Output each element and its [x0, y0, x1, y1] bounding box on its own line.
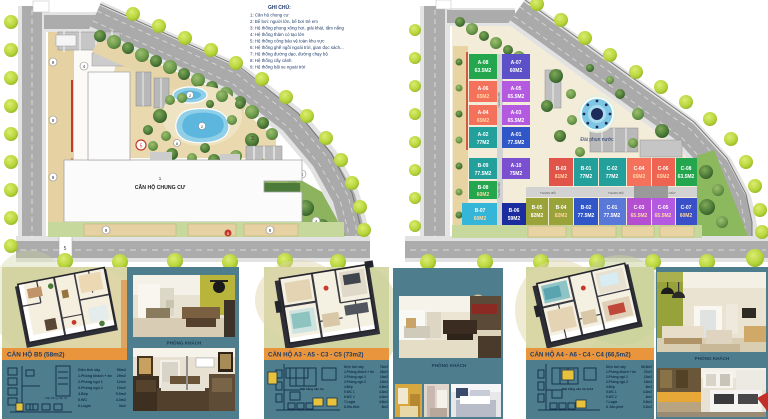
svg-text:10m2: 10m2 — [644, 380, 652, 384]
svg-text:B-06: B-06 — [509, 208, 520, 214]
svg-text:4: Hệ thống thảm cỏ tạo lớn: 4: Hệ thống thảm cỏ tạo lớn — [250, 32, 305, 37]
svg-text:C-07: C-07 — [681, 205, 692, 211]
svg-text:3m2: 3m2 — [119, 404, 126, 408]
svg-text:5.WC: 5.WC — [78, 398, 87, 402]
svg-text:1.Phòng khách + ăn: 1.Phòng khách + ăn — [606, 370, 636, 374]
svg-text:9: Hệ thống bãi xe ngoài trời: 9: Hệ thống bãi xe ngoài trời — [250, 65, 305, 70]
svg-text:CĂN HỘ A4 - A6 - C4 - C4 (66,5: CĂN HỘ A4 - A6 - C4 - C4 (66,5m2) — [530, 351, 631, 359]
svg-text:60M2: 60M2 — [477, 192, 490, 198]
svg-text:B-08: B-08 — [478, 185, 489, 191]
svg-text:C-08: C-08 — [681, 166, 692, 172]
svg-text:CĂN HỘ CHUNG CƯ: CĂN HỘ CHUNG CƯ — [135, 183, 186, 191]
svg-text:A-01: A-01 — [511, 132, 522, 138]
svg-text:PHÒNG KHÁCH: PHÒNG KHÁCH — [167, 339, 202, 346]
svg-text:B-02: B-02 — [581, 205, 592, 211]
svg-text:6: Hệ thống ghế ngồi ngoài trờ: 6: Hệ thống ghế ngồi ngoài trời, gian đọ… — [250, 45, 344, 50]
svg-text:C-05: C-05 — [658, 205, 669, 211]
svg-text:4.Bếp: 4.Bếp — [78, 392, 89, 396]
svg-text:Đài phun nước: Đài phun nước — [580, 137, 614, 143]
svg-text:4.Bếp: 4.Bếp — [606, 385, 615, 389]
svg-text:CĂN HỘ A3 - A5 - C3 - C5 (73m2: CĂN HỘ A3 - A5 - C3 - C5 (73m2) — [268, 351, 363, 359]
svg-text:GHI CHÚ:: GHI CHÚ: — [268, 4, 291, 11]
svg-text:7.Logia: 7.Logia — [606, 400, 617, 404]
svg-text:7.Logia: 7.Logia — [344, 400, 355, 404]
svg-text:C-01: C-01 — [607, 205, 618, 211]
svg-text:63.5M2: 63.5M2 — [678, 174, 695, 180]
svg-text:A-05: A-05 — [511, 86, 522, 92]
svg-text:6.Logia: 6.Logia — [78, 404, 92, 408]
svg-text:3.5m2: 3.5m2 — [643, 400, 652, 404]
svg-text:4.5m2: 4.5m2 — [379, 400, 388, 404]
svg-text:73m2: 73m2 — [380, 365, 388, 369]
svg-text:8: Hệ thống cây cảnh: 8: Hệ thống cây cảnh — [250, 58, 292, 63]
svg-text:A-02: A-02 — [478, 132, 489, 138]
svg-text:5: Hệ thống cổng bảo vệ toàn k: 5: Hệ thống cổng bảo vệ toàn khu vực — [250, 39, 325, 44]
svg-text:B-07: B-07 — [475, 208, 486, 214]
svg-text:C-03: C-03 — [634, 205, 645, 211]
svg-text:B-09: B-09 — [478, 163, 489, 169]
svg-text:82M2: 82M2 — [555, 213, 568, 219]
svg-text:14m2: 14m2 — [380, 375, 388, 379]
svg-text:66,5m2: 66,5m2 — [641, 365, 652, 369]
svg-text:3.Phòng ngủ 2: 3.Phòng ngủ 2 — [606, 380, 628, 384]
svg-text:65M2: 65M2 — [477, 94, 490, 100]
svg-text:60M2: 60M2 — [680, 213, 693, 219]
svg-text:2: Bể bơi: người lớn, bể bơi t: 2: Bể bơi: người lớn, bể bơi trẻ em — [250, 19, 318, 24]
svg-text:B-04: B-04 — [556, 205, 567, 211]
svg-text:2.Phòng ngủ 1: 2.Phòng ngủ 1 — [344, 375, 366, 379]
svg-text:1: Căn hộ chung cư: 1: Căn hộ chung cư — [250, 13, 289, 18]
svg-text:77.5M2: 77.5M2 — [475, 171, 492, 177]
svg-text:1.Phòng khách + ăn: 1.Phòng khách + ăn — [78, 374, 112, 378]
svg-text:3.Phòng ngủ 2: 3.Phòng ngủ 2 — [344, 380, 366, 384]
svg-text:THANG BỘ: THANG BỘ — [540, 190, 556, 195]
svg-text:8m2: 8m2 — [646, 385, 653, 389]
svg-text:3.: 3. — [251, 136, 255, 142]
svg-text:A-08: A-08 — [478, 60, 489, 66]
svg-text:63.5M2: 63.5M2 — [475, 68, 492, 74]
svg-text:65.5M2: 65.5M2 — [508, 118, 525, 124]
svg-text:65M2: 65M2 — [477, 118, 490, 124]
svg-text:75M2: 75M2 — [510, 171, 523, 177]
svg-text:Mặt bằng căn hộ: Mặt bằng căn hộ — [45, 395, 68, 400]
svg-text:81M2: 81M2 — [555, 174, 568, 180]
svg-text:4m2: 4m2 — [646, 395, 653, 399]
svg-text:77.5M2: 77.5M2 — [578, 213, 595, 219]
svg-text:8.Gia đình: 8.Gia đình — [344, 405, 359, 409]
svg-text:60M2: 60M2 — [474, 216, 487, 222]
svg-text:10m2: 10m2 — [117, 386, 126, 390]
svg-text:A-06: A-06 — [478, 86, 489, 92]
svg-text:6.WC 2: 6.WC 2 — [606, 395, 617, 399]
svg-text:B-01: B-01 — [581, 166, 592, 172]
svg-text:4.5m2: 4.5m2 — [379, 385, 388, 389]
svg-text:CĂN HỘ B5 (58m2): CĂN HỘ B5 (58m2) — [7, 350, 65, 359]
svg-text:5: 5 — [140, 144, 143, 150]
svg-text:1.Phòng khách + ăn: 1.Phòng khách + ăn — [344, 370, 374, 374]
svg-text:C-04: C-04 — [634, 166, 645, 172]
svg-text:6.WC 2: 6.WC 2 — [344, 395, 355, 399]
svg-text:PHÒNG KHÁCH: PHÒNG KHÁCH — [695, 354, 730, 361]
svg-text:77.5M2: 77.5M2 — [604, 213, 621, 219]
svg-text:77M2: 77M2 — [580, 174, 593, 180]
svg-text:8m2: 8m2 — [382, 405, 389, 409]
svg-text:4.Bếp: 4.Bếp — [344, 385, 353, 389]
svg-text:PHÒNG KHÁCH: PHÒNG KHÁCH — [432, 361, 467, 368]
svg-text:12m2: 12m2 — [644, 375, 652, 379]
svg-text:12m2: 12m2 — [117, 380, 126, 384]
svg-text:A-10: A-10 — [511, 163, 522, 169]
svg-text:3: Hệ thống phong xông hơi, gi: 3: Hệ thống phong xông hơi, giải khát, t… — [250, 26, 344, 31]
svg-text:2.Phòng ngủ 1: 2.Phòng ngủ 1 — [78, 380, 103, 384]
svg-text:4.3m2: 4.3m2 — [379, 390, 388, 394]
svg-text:B-03: B-03 — [556, 166, 567, 172]
svg-text:65M2: 65M2 — [633, 174, 646, 180]
svg-text:Mặt bằng căn hộ: Mặt bằng căn hộ — [300, 386, 324, 391]
svg-text:58m2: 58m2 — [117, 368, 126, 372]
svg-text:7: Hệ thống đường dạo, đường c: 7: Hệ thống đường dạo, đường chạy bộ — [250, 52, 328, 57]
svg-text:4.3m2: 4.3m2 — [116, 398, 126, 402]
svg-text:4.3m2: 4.3m2 — [379, 395, 388, 399]
svg-text:5.WC 1: 5.WC 1 — [344, 390, 355, 394]
svg-text:82M2: 82M2 — [531, 213, 544, 219]
svg-text:10m2: 10m2 — [380, 380, 388, 384]
svg-text:2.Phòng ngủ 1: 2.Phòng ngủ 1 — [606, 375, 628, 379]
svg-text:59M2: 59M2 — [508, 216, 521, 222]
svg-text:A-03: A-03 — [511, 110, 522, 116]
svg-text:Diện tích xây: Diện tích xây — [606, 365, 626, 369]
svg-text:C-02: C-02 — [607, 166, 618, 172]
svg-text:THANG BỘ: THANG BỘ — [608, 190, 624, 195]
svg-text:4.3m2: 4.3m2 — [643, 390, 652, 394]
svg-text:65M2: 65M2 — [657, 174, 670, 180]
svg-text:65.5M2: 65.5M2 — [655, 213, 672, 219]
svg-text:B-05: B-05 — [532, 205, 543, 211]
svg-text:77M2: 77M2 — [477, 140, 490, 146]
svg-text:8. Sân phơi: 8. Sân phơi — [606, 405, 623, 409]
svg-text:A-07: A-07 — [511, 60, 522, 66]
svg-text:77M2: 77M2 — [606, 174, 619, 180]
svg-text:65.5M2: 65.5M2 — [631, 213, 648, 219]
svg-text:3.Phòng ngủ 2: 3.Phòng ngủ 2 — [78, 386, 103, 390]
svg-text:5.5m2: 5.5m2 — [116, 392, 126, 396]
svg-text:29m2: 29m2 — [117, 374, 126, 378]
svg-text:5: 5 — [64, 246, 67, 252]
svg-text:C-06: C-06 — [658, 166, 669, 172]
svg-text:77.5M2: 77.5M2 — [508, 140, 525, 146]
svg-text:27m2: 27m2 — [644, 370, 652, 374]
svg-text:Diện tích xây: Diện tích xây — [344, 365, 364, 369]
svg-text:22m2: 22m2 — [380, 370, 388, 374]
svg-text:65.5M2: 65.5M2 — [508, 94, 525, 100]
svg-text:Mặt bằng căn hộ 4x13: Mặt bằng căn hộ 4x13 — [562, 386, 594, 391]
svg-text:A-04: A-04 — [478, 110, 489, 116]
svg-text:3.2m2: 3.2m2 — [643, 405, 652, 409]
svg-text:60M2: 60M2 — [510, 68, 523, 74]
svg-text:5.WC 1: 5.WC 1 — [606, 390, 617, 394]
svg-text:Diện tích xây: Diện tích xây — [78, 368, 100, 372]
